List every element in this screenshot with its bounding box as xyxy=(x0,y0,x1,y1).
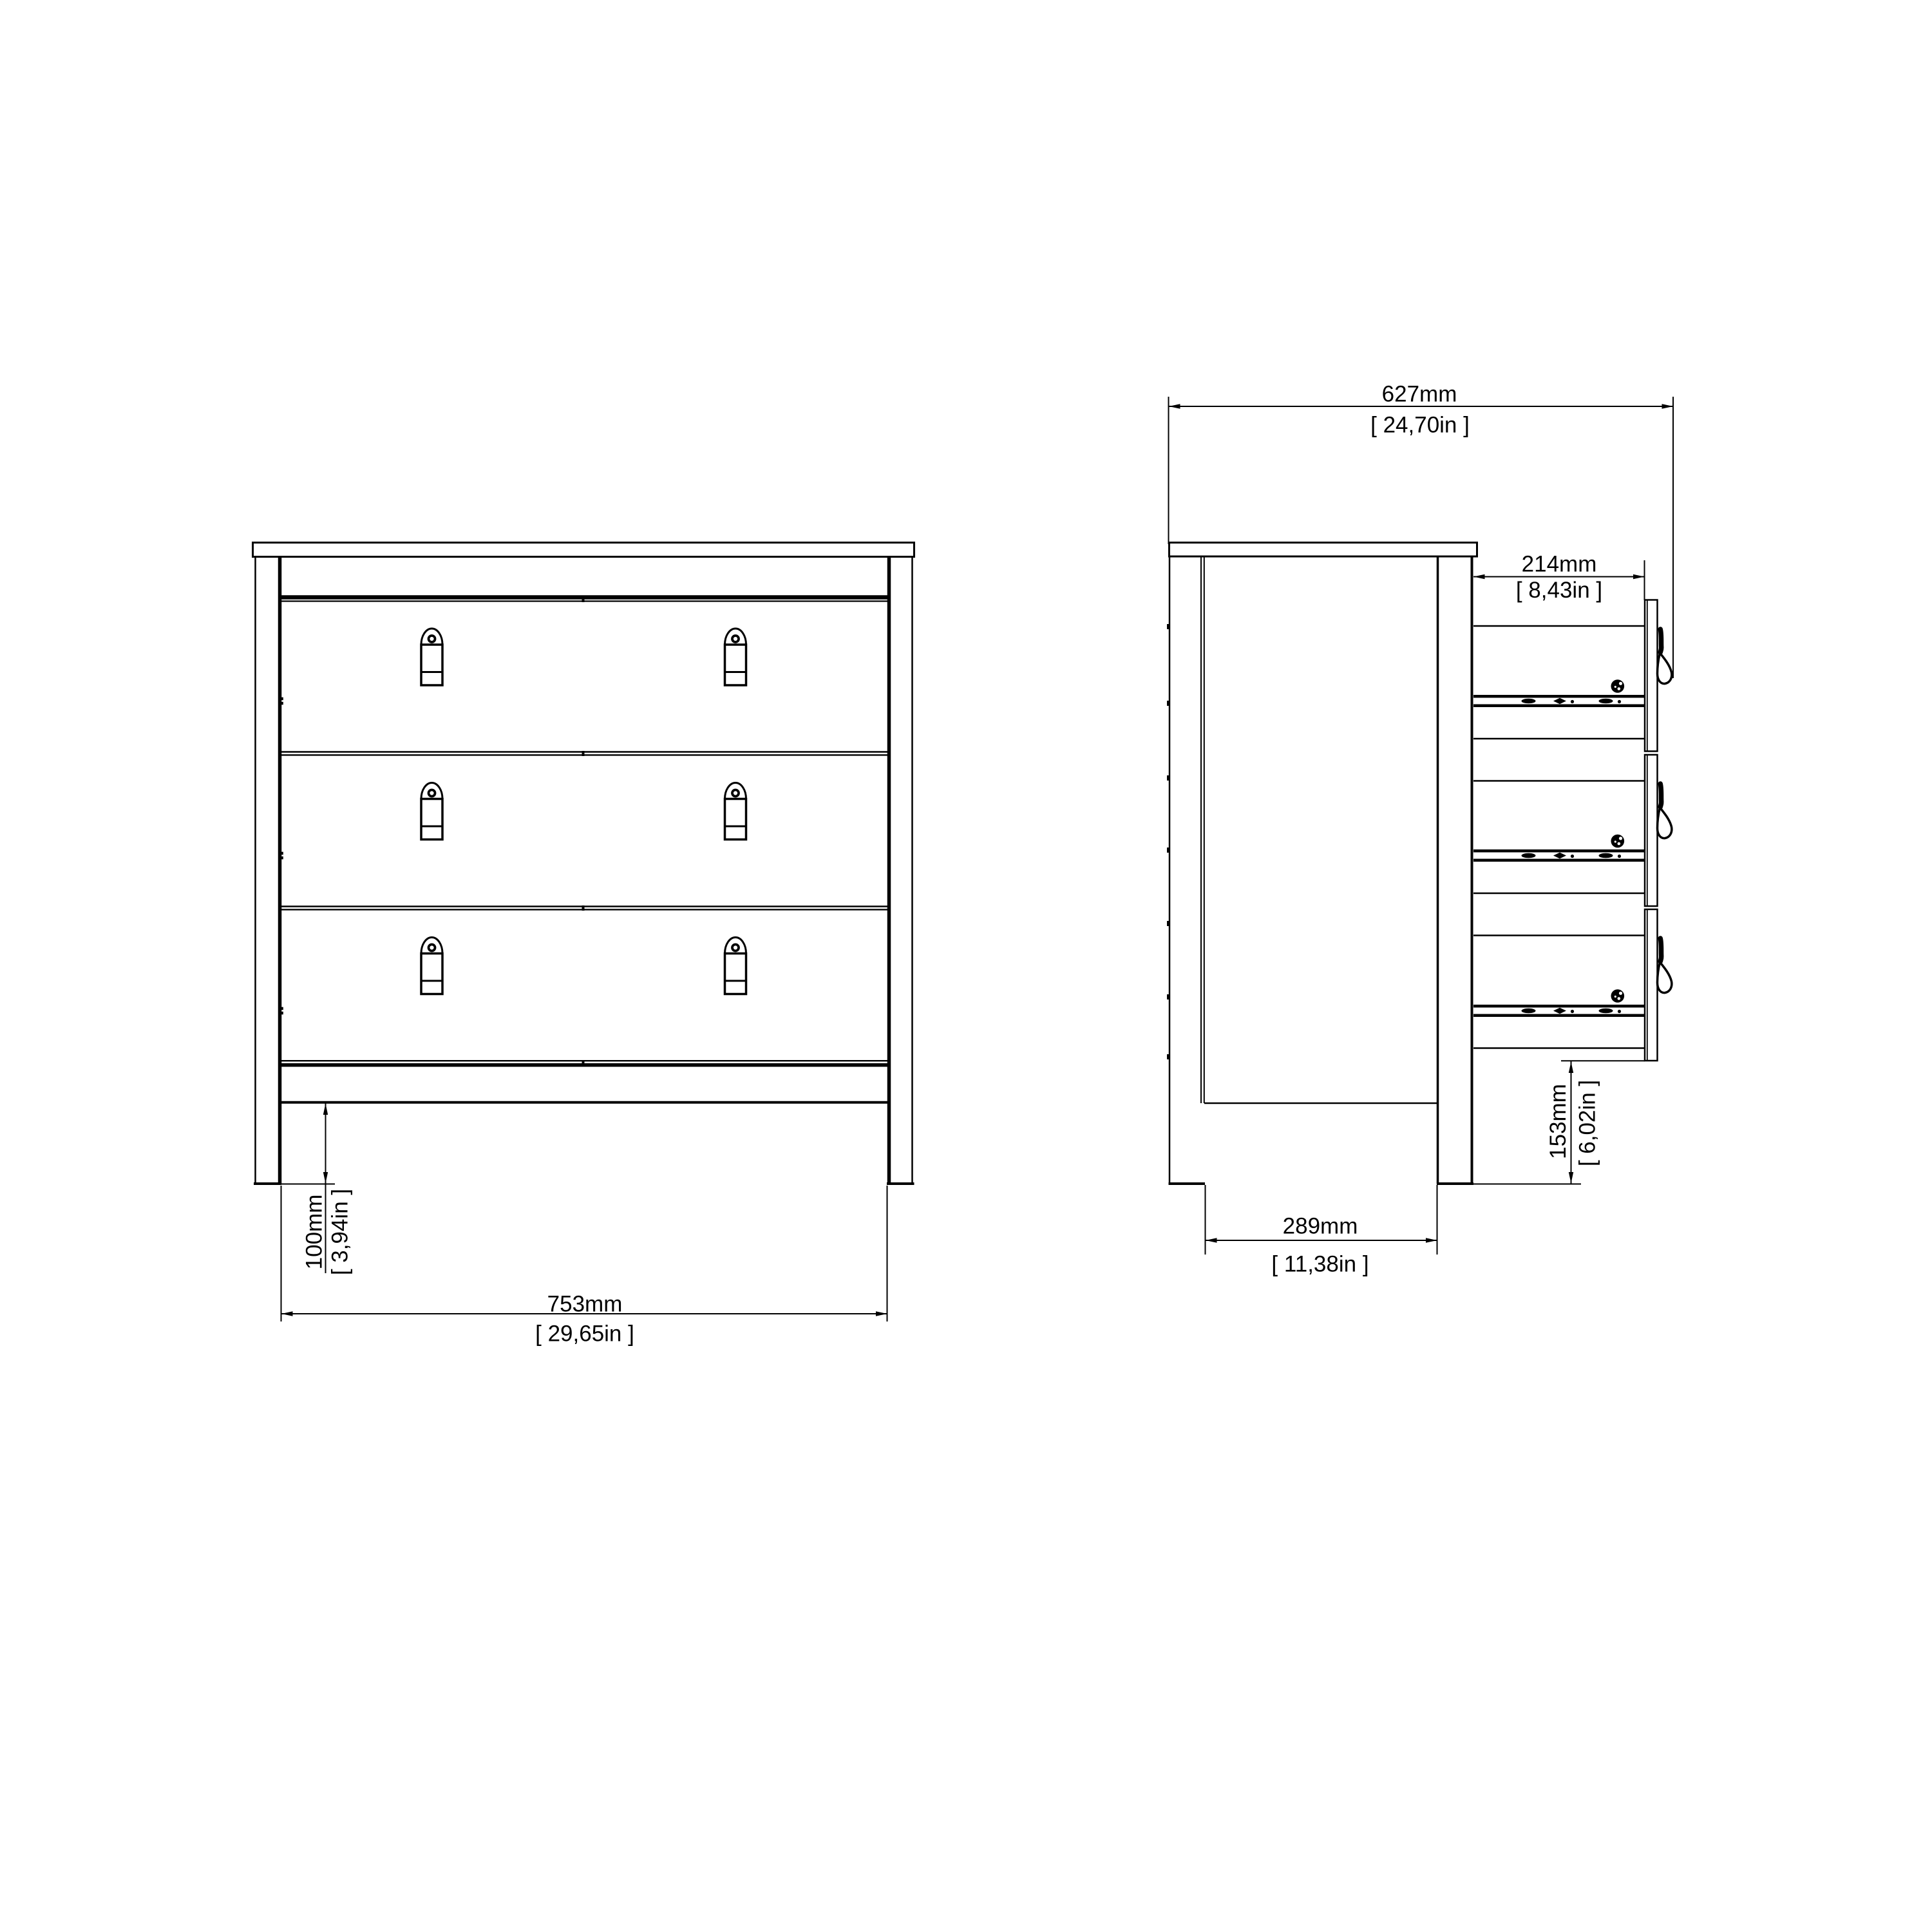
svg-text:214mm: 214mm xyxy=(1522,552,1597,577)
svg-text:289mm: 289mm xyxy=(1283,1214,1358,1239)
svg-text:[ 11,38in ]: [ 11,38in ] xyxy=(1271,1252,1368,1277)
svg-text:753mm: 753mm xyxy=(547,1292,623,1317)
svg-text:[ 24,70in ]: [ 24,70in ] xyxy=(1370,413,1470,438)
svg-text:[ 29,65in ]: [ 29,65in ] xyxy=(535,1321,634,1347)
svg-text:627mm: 627mm xyxy=(1382,382,1457,407)
svg-text:[ 6,02in ]: [ 6,02in ] xyxy=(1575,1080,1600,1166)
svg-text:100mm: 100mm xyxy=(302,1195,327,1270)
svg-text:[ 8,43in ]: [ 8,43in ] xyxy=(1516,578,1602,603)
svg-text:[ 3,94in ]: [ 3,94in ] xyxy=(328,1189,353,1275)
svg-text:153mm: 153mm xyxy=(1546,1084,1571,1159)
